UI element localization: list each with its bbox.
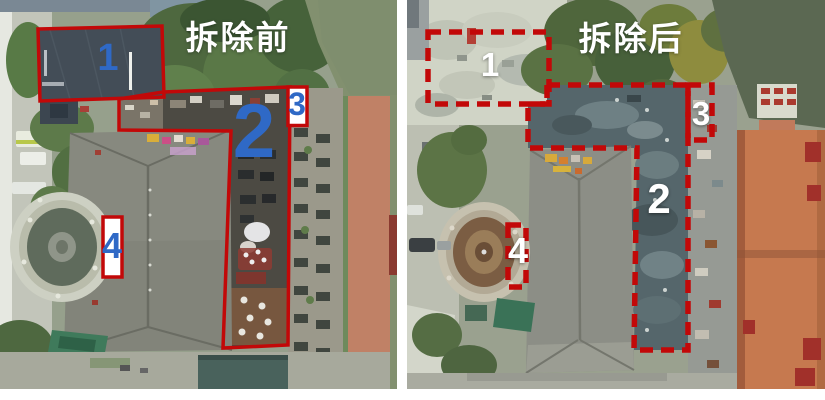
- orange-roof: [737, 130, 825, 389]
- zone-3-label-after: 3: [671, 97, 731, 132]
- zone-1-label-after: 1: [460, 48, 520, 83]
- before-photo-panel: 拆除前 1 2 3 4: [0, 0, 397, 389]
- zone-4-label-before: 4: [82, 227, 142, 265]
- zone-4-label-after: 4: [488, 232, 548, 270]
- aerial-photo-before: [0, 0, 397, 389]
- panel-title-before: 拆除前: [158, 21, 318, 56]
- after-photo-panel: 拆除后 1 2 3 4: [407, 0, 825, 389]
- zone-1-label-before: 1: [78, 39, 138, 79]
- zone-2-label-after: 2: [629, 177, 689, 221]
- panel-title-after: 拆除后: [551, 22, 711, 57]
- demolition-comparison-figure: 拆除前 1 2 3 4: [0, 0, 825, 400]
- zone-3-label-before: 3: [267, 88, 327, 122]
